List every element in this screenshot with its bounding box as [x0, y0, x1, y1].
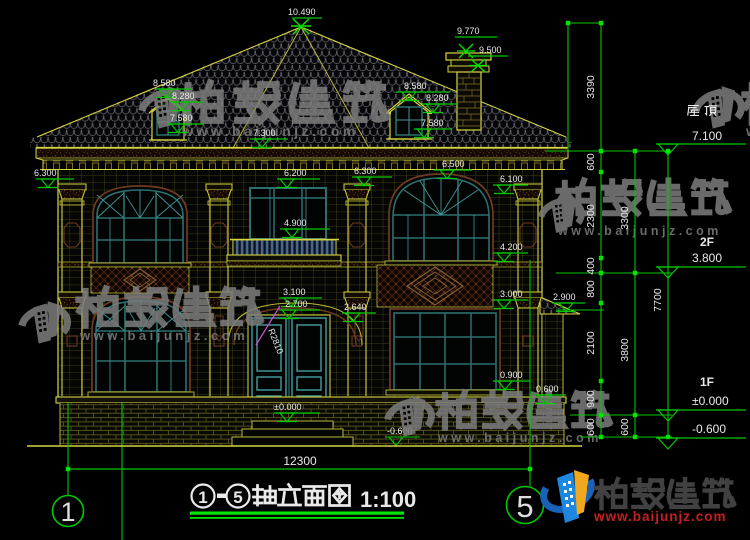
- svg-text:2300: 2300: [585, 204, 597, 228]
- svg-text:800: 800: [585, 280, 597, 298]
- svg-text:2100: 2100: [585, 331, 597, 355]
- svg-text:www.baijunjz.com: www.baijunjz.com: [593, 509, 727, 524]
- svg-text:2F: 2F: [700, 235, 714, 249]
- svg-text:1:100: 1:100: [360, 487, 416, 512]
- svg-text:3.800: 3.800: [692, 251, 722, 265]
- svg-text:7.300: 7.300: [253, 128, 276, 138]
- svg-text:1: 1: [198, 488, 207, 507]
- svg-text:1: 1: [60, 497, 75, 527]
- svg-text:3800: 3800: [619, 338, 631, 362]
- svg-text:5: 5: [233, 488, 242, 507]
- svg-text:2.640: 2.640: [344, 302, 367, 312]
- svg-text:www.baijunjz.com: www.baijunjz.com: [557, 224, 722, 238]
- svg-text:8.580: 8.580: [153, 78, 176, 88]
- svg-text:3390: 3390: [585, 75, 597, 99]
- svg-text:4.200: 4.200: [500, 242, 523, 252]
- svg-text:0.900: 0.900: [500, 370, 523, 380]
- svg-text:9.770: 9.770: [457, 26, 480, 36]
- svg-text:7.580: 7.580: [170, 113, 193, 123]
- svg-text:3300: 3300: [619, 206, 631, 230]
- svg-text:±0.000: ±0.000: [692, 394, 729, 408]
- svg-text:6.200: 6.200: [284, 168, 307, 178]
- svg-text:www.baijunjz.com: www.baijunjz.com: [79, 328, 248, 343]
- svg-text:5: 5: [516, 489, 533, 524]
- svg-text:2.900: 2.900: [553, 292, 576, 302]
- svg-text:9.500: 9.500: [479, 45, 502, 55]
- svg-text:600: 600: [585, 153, 597, 171]
- svg-text:600: 600: [585, 418, 597, 436]
- svg-text:3.100: 3.100: [283, 287, 306, 297]
- svg-text:8.280: 8.280: [426, 93, 449, 103]
- svg-text:www.baijunjz.com: www.baijunjz.com: [437, 431, 602, 445]
- svg-text:10.490: 10.490: [288, 7, 316, 17]
- svg-text:0.600: 0.600: [536, 384, 559, 394]
- svg-text:3.000: 3.000: [500, 289, 523, 299]
- svg-text:7700: 7700: [652, 288, 664, 312]
- svg-text:600: 600: [619, 418, 631, 436]
- svg-text:7.100: 7.100: [692, 129, 722, 143]
- svg-text:8.580: 8.580: [404, 81, 427, 91]
- svg-text:±0.000: ±0.000: [274, 402, 301, 412]
- svg-text:www.baijunjz.com: www.baijunjz.com: [745, 123, 750, 139]
- svg-text:-0.600: -0.600: [692, 422, 726, 436]
- svg-text:8.280: 8.280: [172, 91, 195, 101]
- svg-text:7.580: 7.580: [421, 118, 444, 128]
- svg-text:12300: 12300: [283, 454, 317, 468]
- svg-text:6.300: 6.300: [354, 166, 377, 176]
- svg-text:1F: 1F: [700, 375, 714, 389]
- svg-text:900: 900: [585, 390, 597, 408]
- svg-text:2.700: 2.700: [285, 299, 308, 309]
- svg-text:6.100: 6.100: [500, 174, 523, 184]
- svg-text:4.900: 4.900: [284, 218, 307, 228]
- svg-text:6.300: 6.300: [34, 168, 57, 178]
- svg-text:6.500: 6.500: [442, 159, 465, 169]
- svg-text:400: 400: [585, 257, 597, 275]
